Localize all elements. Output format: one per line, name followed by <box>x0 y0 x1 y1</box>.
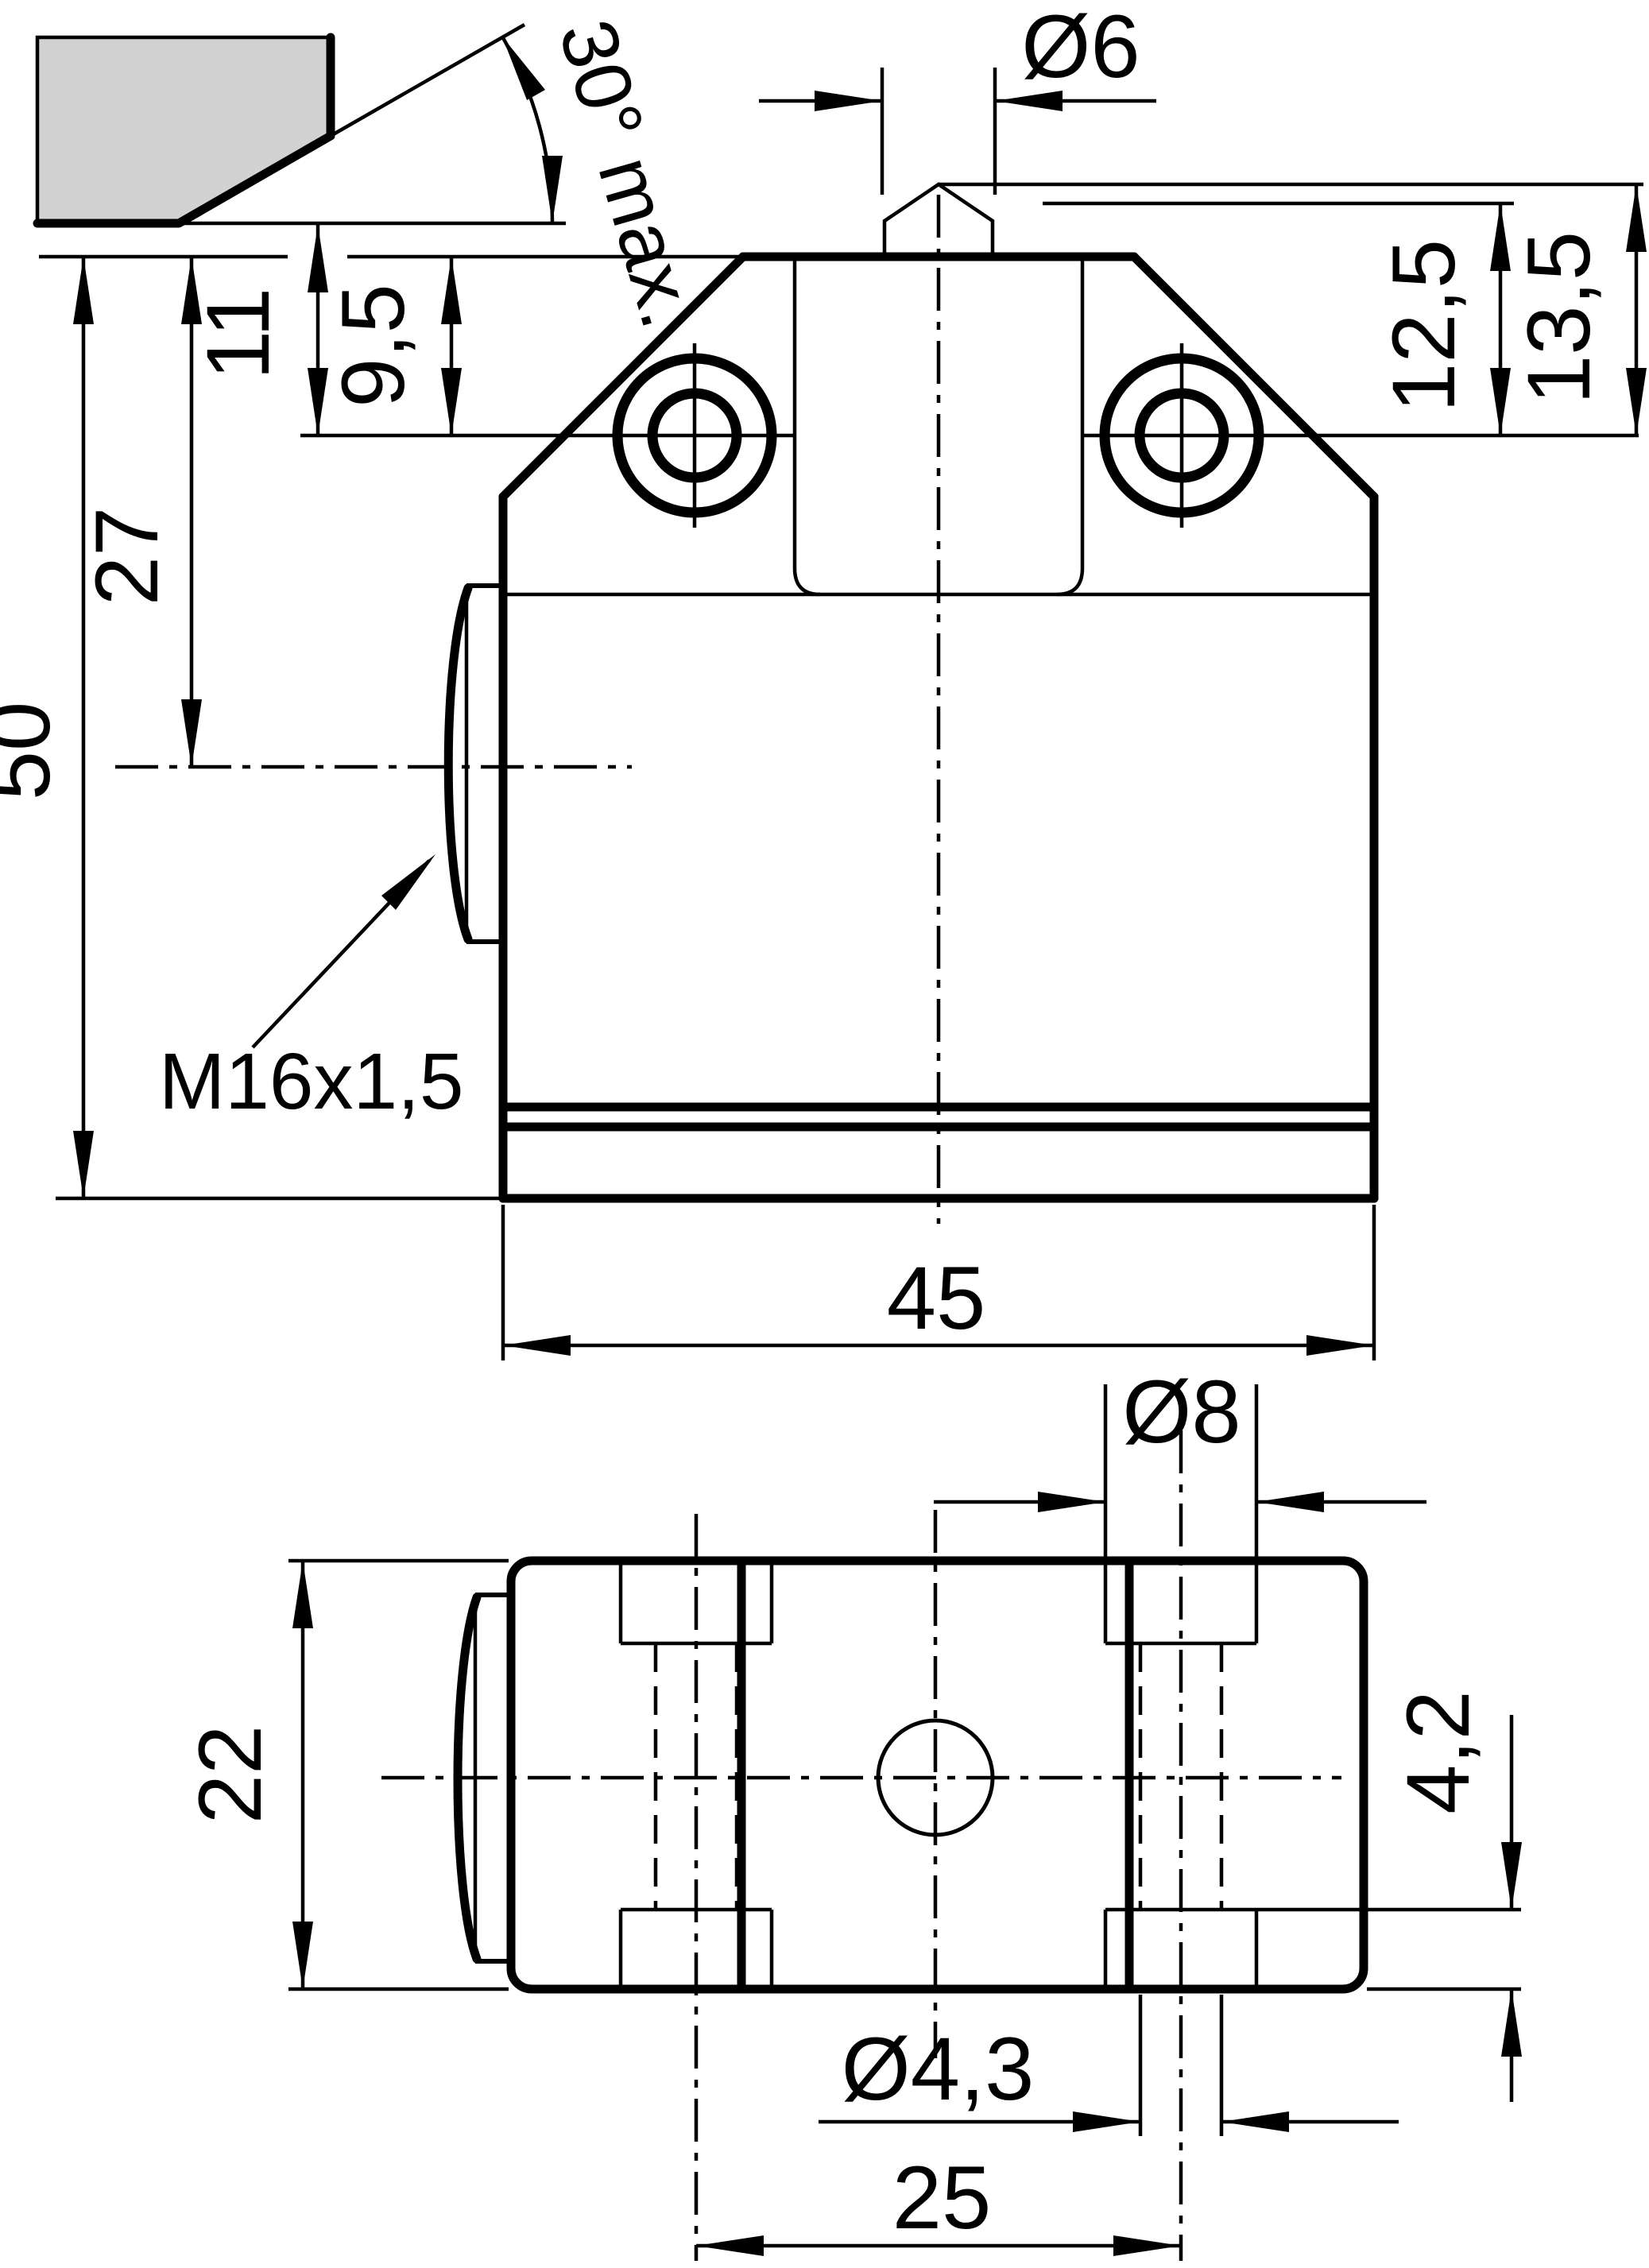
dim22-label: 22 <box>180 1725 280 1825</box>
dim135-arrow-bottom <box>1626 368 1647 435</box>
dim45-arrow-left <box>503 1335 571 1356</box>
dim22-arrow-top <box>292 1561 313 1628</box>
thread-leader-arrow <box>381 854 435 910</box>
angle-arrow-top <box>502 37 545 100</box>
angle-incline-line <box>331 25 525 136</box>
dia8-arrow-left <box>1038 1492 1105 1512</box>
dia43-dimension: Ø4,3 <box>819 1995 1399 2136</box>
dim25-arrow-left <box>696 2235 764 2256</box>
dim22-arrow-bottom <box>292 1922 313 1989</box>
dim42-label: 4,2 <box>1388 1690 1488 1814</box>
plan-hole-right <box>1105 1430 1521 2261</box>
dim95-arrow-bottom <box>441 368 462 435</box>
dim25: 25 <box>696 2148 1181 2256</box>
plan-hole-left <box>621 1514 772 2261</box>
cam-dog <box>37 37 331 223</box>
dim135-label: 13,5 <box>1509 231 1608 404</box>
cam-fill <box>37 37 331 223</box>
plan-outline <box>511 1561 1364 1989</box>
plan-center-lines <box>381 1510 1341 2058</box>
dim50-arrow-top <box>73 257 94 324</box>
dim25-arrow-right <box>1113 2235 1181 2256</box>
dim42-arrow-top <box>1501 1842 1522 1910</box>
plunger <box>884 184 993 1224</box>
dia6-label: Ø6 <box>1021 0 1140 96</box>
dim95-label: 9,5 <box>323 284 423 408</box>
dim95-arrow-top <box>441 257 462 324</box>
dia8-arrow-right <box>1256 1492 1324 1512</box>
thread-label: M16x1,5 <box>159 1037 464 1126</box>
dim45-arrow-right <box>1306 1335 1374 1356</box>
dim27-label: 27 <box>77 507 176 606</box>
drawing-page: 30° max. <box>0 0 1649 2268</box>
dim45-label: 45 <box>887 1248 986 1348</box>
dim125-arrow-bottom <box>1490 368 1511 435</box>
dim50-label: 50 <box>0 702 68 801</box>
plunger-dia-dimension: Ø6 <box>759 0 1156 195</box>
right-dimensions: 12,5 13,5 <box>1374 184 1647 435</box>
dim42-arrow-bottom <box>1501 1989 1522 2057</box>
dim11-label: 11 <box>188 288 288 380</box>
width-dimension: 45 <box>503 1205 1374 1360</box>
dia43-arrow-left <box>1073 2111 1140 2132</box>
plan-body <box>511 1561 1364 1989</box>
angle-arc <box>502 37 552 223</box>
dim42: 4,2 <box>1367 1690 1522 2102</box>
dim50-arrow-bottom <box>73 1131 94 1198</box>
dim11-arrow-top <box>308 225 328 292</box>
dim27-arrow-bottom <box>181 699 202 767</box>
dim135-arrow-top <box>1626 184 1647 252</box>
thread-callout: M16x1,5 <box>159 854 464 1126</box>
dia43-label: Ø4,3 <box>842 2019 1035 2119</box>
pocket-fillet-right <box>1057 568 1082 594</box>
dia43-arrow-right <box>1221 2111 1289 2132</box>
dia8-label: Ø8 <box>1122 1362 1241 1461</box>
dim125-label: 12,5 <box>1374 239 1473 412</box>
pocket-fillet-left <box>795 568 820 594</box>
dia6-arrow-left <box>815 91 882 111</box>
limit-switch-drawing: 30° max. <box>0 0 1649 2268</box>
dim125-arrow-top <box>1490 203 1511 271</box>
angle-arrow-bottom <box>542 156 563 223</box>
angle-label: 30° max. <box>542 10 714 337</box>
dim25-label: 25 <box>892 2148 992 2247</box>
